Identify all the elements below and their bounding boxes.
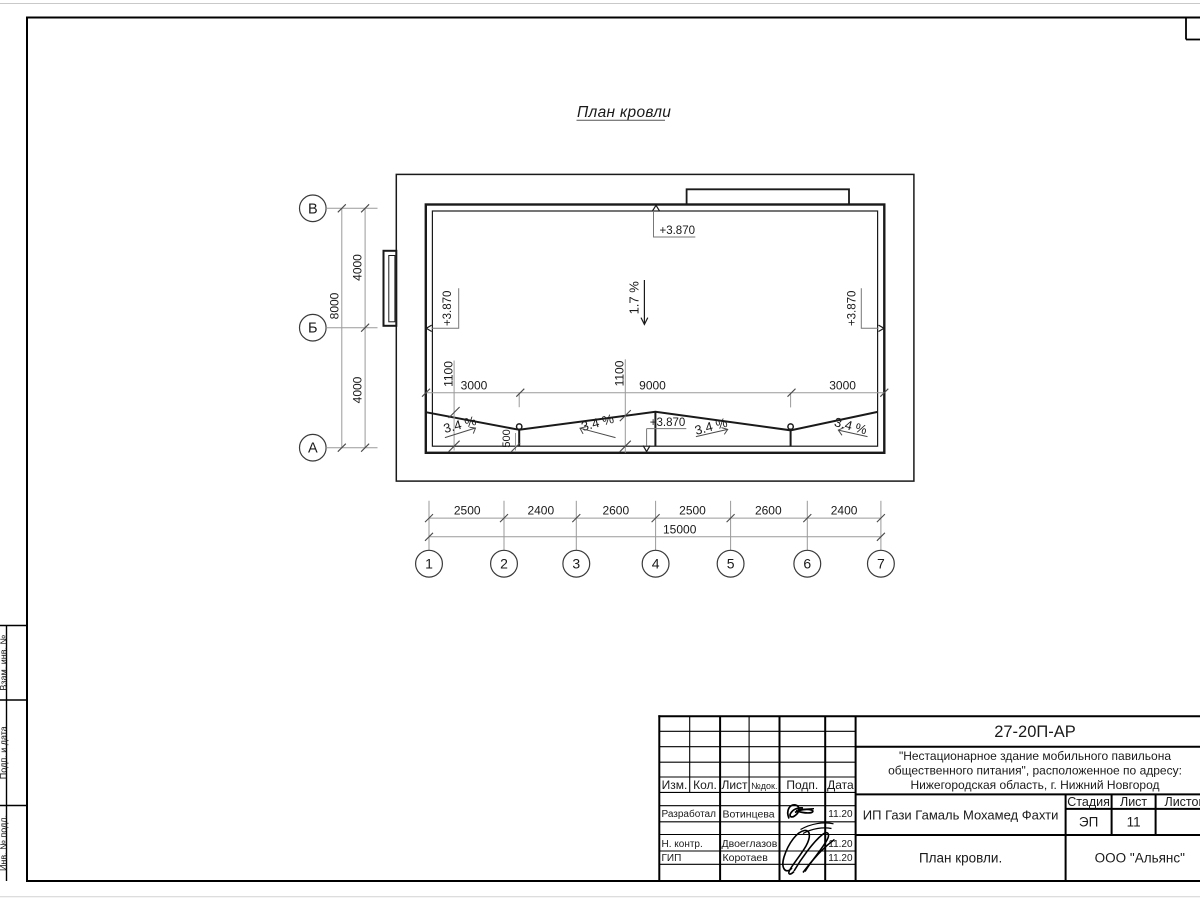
svg-text:Кол.: Кол. (693, 778, 717, 792)
svg-text:Лист: Лист (721, 778, 748, 792)
svg-text:ГИП: ГИП (662, 853, 682, 864)
svg-text:Разработал: Разработал (662, 808, 717, 820)
svg-text:5: 5 (727, 556, 735, 572)
svg-text:А: А (308, 441, 318, 457)
svg-text:11.20: 11.20 (828, 809, 853, 820)
svg-text:Лист: Лист (1120, 795, 1147, 809)
svg-text:общественного питания", распол: общественного питания", расположенное по… (888, 764, 1182, 778)
svg-text:В: В (308, 201, 318, 217)
svg-text:План кровли.: План кровли. (919, 851, 1002, 866)
svg-text:1.7 %: 1.7 % (627, 281, 642, 315)
svg-text:Б: Б (308, 321, 318, 337)
svg-text:3000: 3000 (461, 379, 488, 393)
svg-text:2400: 2400 (831, 504, 858, 518)
svg-text:2500: 2500 (679, 504, 706, 518)
svg-text:3.4 %: 3.4 % (833, 414, 869, 437)
svg-text:1100: 1100 (613, 360, 627, 386)
svg-text:Листов: Листов (1164, 795, 1200, 809)
svg-text:Подп. и дата: Подп. и дата (0, 726, 9, 779)
svg-text:27-20П-АР: 27-20П-АР (994, 723, 1076, 741)
svg-text:Вотинцева: Вотинцева (723, 808, 775, 820)
svg-text:Стадия: Стадия (1067, 795, 1110, 809)
svg-text:План кровли: План кровли (577, 104, 671, 121)
svg-text:Дата: Дата (827, 778, 854, 792)
svg-text:4000: 4000 (351, 376, 365, 403)
svg-text:2600: 2600 (602, 504, 629, 518)
svg-text:8000: 8000 (328, 292, 342, 319)
svg-text:ЭП: ЭП (1079, 815, 1098, 830)
svg-text:500: 500 (501, 429, 513, 447)
svg-text:2: 2 (500, 556, 508, 572)
svg-text:Нижегородская область, г. Нижн: Нижегородская область, г. Нижний Новгоро… (911, 778, 1160, 792)
svg-text:Подп.: Подп. (786, 778, 818, 792)
svg-text:9000: 9000 (639, 379, 666, 393)
svg-text:15000: 15000 (663, 523, 697, 537)
svg-text:2500: 2500 (454, 504, 481, 518)
svg-text:Взам. инв. №: Взам. инв. № (0, 634, 9, 690)
svg-text:4000: 4000 (351, 254, 365, 281)
svg-text:11: 11 (1127, 815, 1141, 830)
svg-text:3: 3 (572, 556, 580, 572)
svg-text:+3.870: +3.870 (442, 291, 454, 327)
svg-text:3000: 3000 (829, 379, 856, 393)
svg-text:+3.870: +3.870 (660, 225, 696, 237)
svg-text:Коротаев: Коротаев (723, 852, 769, 864)
svg-text:1100: 1100 (442, 361, 456, 387)
svg-text:11.20: 11.20 (828, 853, 853, 864)
svg-text:+3.870: +3.870 (846, 291, 858, 327)
svg-text:Инв. № подл.: Инв. № подл. (0, 815, 9, 871)
svg-text:ИП Гази Гамаль Мохамед Фахти: ИП Гази Гамаль Мохамед Фахти (863, 808, 1059, 823)
svg-text:2600: 2600 (755, 504, 782, 518)
svg-text:2400: 2400 (527, 504, 554, 518)
svg-text:1: 1 (425, 556, 433, 572)
svg-text:ООО "Альянс": ООО "Альянс" (1095, 851, 1185, 866)
svg-text:+3.870: +3.870 (650, 417, 686, 429)
svg-text:7: 7 (877, 556, 885, 572)
svg-text:4: 4 (652, 556, 660, 572)
svg-text:№док.: №док. (751, 781, 777, 791)
svg-text:Двоеглазов: Двоеглазов (722, 838, 778, 850)
svg-text:Н. контр.: Н. контр. (662, 839, 703, 850)
svg-text:Изм.: Изм. (662, 778, 688, 792)
svg-text:6: 6 (803, 556, 811, 572)
svg-text:"Нестационарное здание мобильн: "Нестационарное здание мобильного павиль… (899, 749, 1171, 763)
svg-text:3.4 %: 3.4 % (580, 411, 616, 434)
